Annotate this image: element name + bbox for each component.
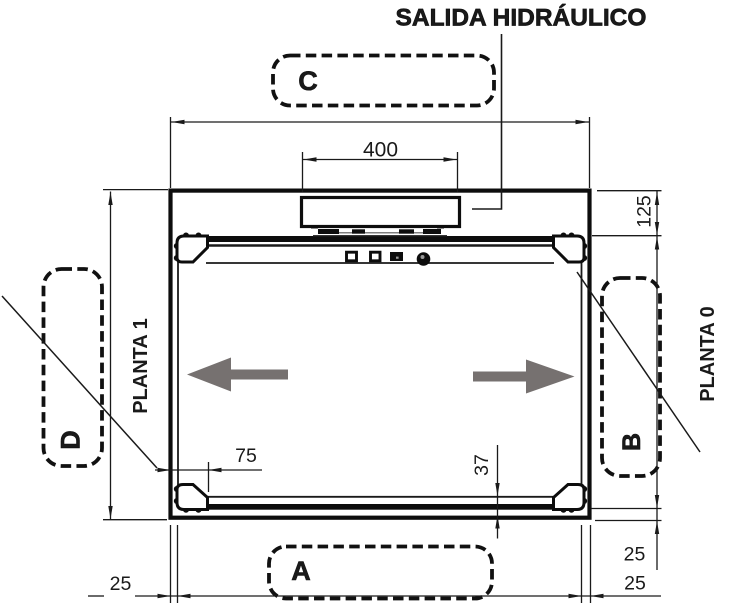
svg-text:25: 25 — [110, 573, 132, 595]
svg-text:D: D — [56, 430, 86, 450]
svg-text:PLANTA 0: PLANTA 0 — [697, 306, 719, 402]
svg-text:75: 75 — [235, 445, 257, 467]
svg-text:A: A — [291, 556, 311, 586]
svg-text:PLANTA 1: PLANTA 1 — [130, 318, 152, 414]
svg-text:25: 25 — [624, 573, 646, 595]
svg-text:B: B — [618, 433, 646, 451]
svg-text:125: 125 — [634, 195, 656, 228]
svg-text:C: C — [298, 66, 318, 96]
svg-text:37: 37 — [471, 454, 493, 476]
svg-text:400: 400 — [363, 139, 398, 162]
svg-text:SALIDA HIDRÁULICO: SALIDA HIDRÁULICO — [396, 4, 647, 32]
svg-text:25: 25 — [624, 544, 646, 566]
